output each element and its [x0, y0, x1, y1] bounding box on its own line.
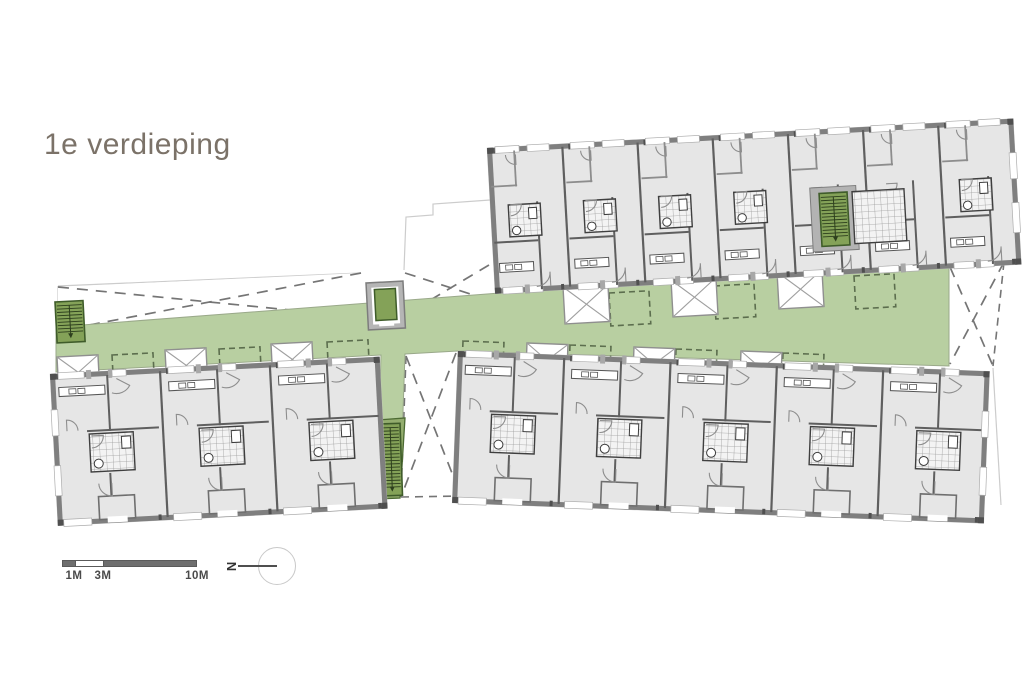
- washbasin-icon: [919, 456, 928, 465]
- scale-labels: 1M 3M 10M: [62, 567, 202, 583]
- toilet-icon: [948, 436, 957, 448]
- north-letter: N: [224, 562, 239, 571]
- scale-label-1m: 1M: [66, 570, 83, 582]
- core-stair: [819, 192, 850, 246]
- washbasin-icon: [494, 440, 503, 449]
- washbasin-icon: [663, 218, 672, 227]
- kitchen-counter: [571, 369, 617, 380]
- washbasin-icon: [204, 453, 213, 462]
- skylight-shaft: [563, 284, 610, 323]
- loggia-recess: [813, 490, 850, 514]
- scale-segment-light: [75, 561, 104, 566]
- washbasin-icon: [314, 447, 323, 456]
- technical-room: [852, 189, 907, 244]
- elevator-shaft: [366, 281, 405, 330]
- kitchen-counter: [575, 257, 609, 268]
- loggia-recess: [494, 478, 531, 502]
- stair-flight: [55, 301, 85, 343]
- toilet-icon: [629, 424, 638, 436]
- toilet-icon: [528, 207, 537, 218]
- washbasin-icon: [963, 201, 972, 210]
- north-arrow: N: [226, 546, 300, 588]
- kitchen-counter: [59, 385, 105, 396]
- washbasin-icon: [94, 459, 103, 468]
- washbasin-icon: [706, 448, 715, 457]
- southwest-block: [49, 355, 387, 527]
- scale-bar-graphic: [62, 560, 197, 567]
- loggia-recess: [601, 482, 638, 506]
- toilet-icon: [231, 430, 241, 442]
- scale-segment-dark: [63, 561, 75, 566]
- washbasin-icon: [600, 444, 609, 453]
- toilet-icon: [736, 428, 745, 440]
- scale-bar: 1M 3M 10M: [62, 560, 202, 583]
- kitchen-counter: [278, 374, 324, 385]
- kitchen-counter: [678, 373, 724, 384]
- kitchen-counter: [499, 262, 533, 273]
- washbasin-icon: [813, 452, 822, 461]
- scale-label-3m: 3M: [95, 570, 112, 582]
- kitchen-counter: [465, 365, 511, 376]
- loggia-recess: [208, 489, 245, 514]
- toilet-icon: [604, 203, 613, 214]
- loggia-recess: [920, 494, 957, 518]
- washbasin-icon: [738, 213, 747, 222]
- loggia-recess: [98, 495, 135, 520]
- washbasin-icon: [587, 222, 596, 231]
- kitchen-counter: [784, 378, 830, 389]
- kitchen-counter: [650, 253, 684, 264]
- north-block: [487, 118, 1022, 296]
- scale-segment-dark2: [104, 561, 196, 566]
- kitchen-counter: [890, 382, 936, 393]
- page: 1e verdieping 1M 3M 10M N: [0, 0, 1024, 683]
- washbasin-icon: [512, 226, 521, 235]
- kitchen-counter: [169, 379, 215, 390]
- scale-label-10m: 10M: [185, 570, 209, 582]
- page-title: 1e verdieping: [44, 128, 231, 162]
- southeast-block: [452, 349, 990, 524]
- toilet-icon: [679, 199, 688, 210]
- loggia-recess: [707, 486, 744, 510]
- toilet-icon: [523, 420, 532, 432]
- toilet-icon: [754, 195, 763, 206]
- toilet-icon: [842, 432, 851, 444]
- kitchen-counter: [725, 249, 759, 260]
- kitchen-counter: [950, 236, 984, 247]
- north-needle-icon: [238, 565, 277, 567]
- toilet-icon: [341, 424, 351, 436]
- loggia-recess: [318, 483, 355, 508]
- toilet-icon: [979, 182, 988, 193]
- toilet-icon: [121, 436, 131, 448]
